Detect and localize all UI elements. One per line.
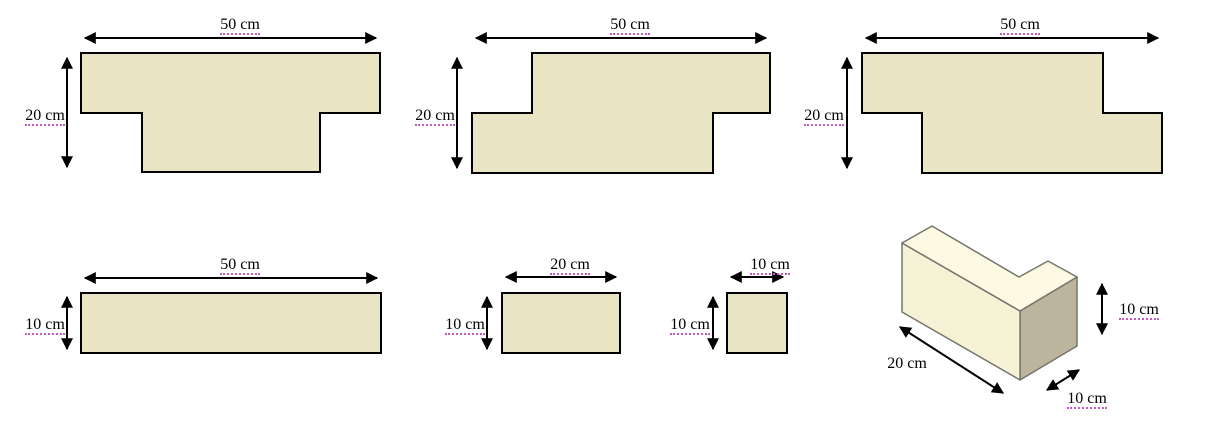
medium-rect-height-label: 10 cm (433, 316, 497, 335)
t-shape-width-label: 50 cm (208, 16, 272, 35)
small-square-outline (727, 293, 787, 353)
z-shape-left-height-label: 20 cm (792, 107, 856, 126)
small-square-width-label: 10 cm (738, 256, 802, 275)
medium-rect-outline (502, 293, 620, 353)
block-3d-length-label: 20 cm (875, 355, 939, 372)
small-square-height-label: 10 cm (658, 316, 722, 335)
block-3d-depth-label: 10 cm (1055, 390, 1119, 409)
t-shape-outline (81, 53, 380, 172)
shapes-drawing (0, 0, 1213, 425)
long-rect-height-label: 10 cm (13, 316, 77, 335)
brick-shapes-worksheet: 50 cm 20 cm 50 cm 20 cm 50 cm 20 cm 50 c… (0, 0, 1213, 425)
block-3d-height-label: 10 cm (1107, 301, 1171, 320)
long-rect-width-label: 50 cm (208, 256, 272, 275)
z-shape-right-width-label: 50 cm (598, 16, 662, 35)
z-shape-right-height-label: 20 cm (403, 107, 467, 126)
long-rect-outline (81, 293, 381, 353)
medium-rect-width-label: 20 cm (538, 256, 602, 275)
block-3d-depth-arrow (1047, 370, 1079, 390)
z-shape-right-outline (472, 53, 770, 173)
z-shape-left-outline (862, 53, 1162, 173)
t-shape-height-label: 20 cm (13, 107, 77, 126)
z-shape-left-width-label: 50 cm (988, 16, 1052, 35)
